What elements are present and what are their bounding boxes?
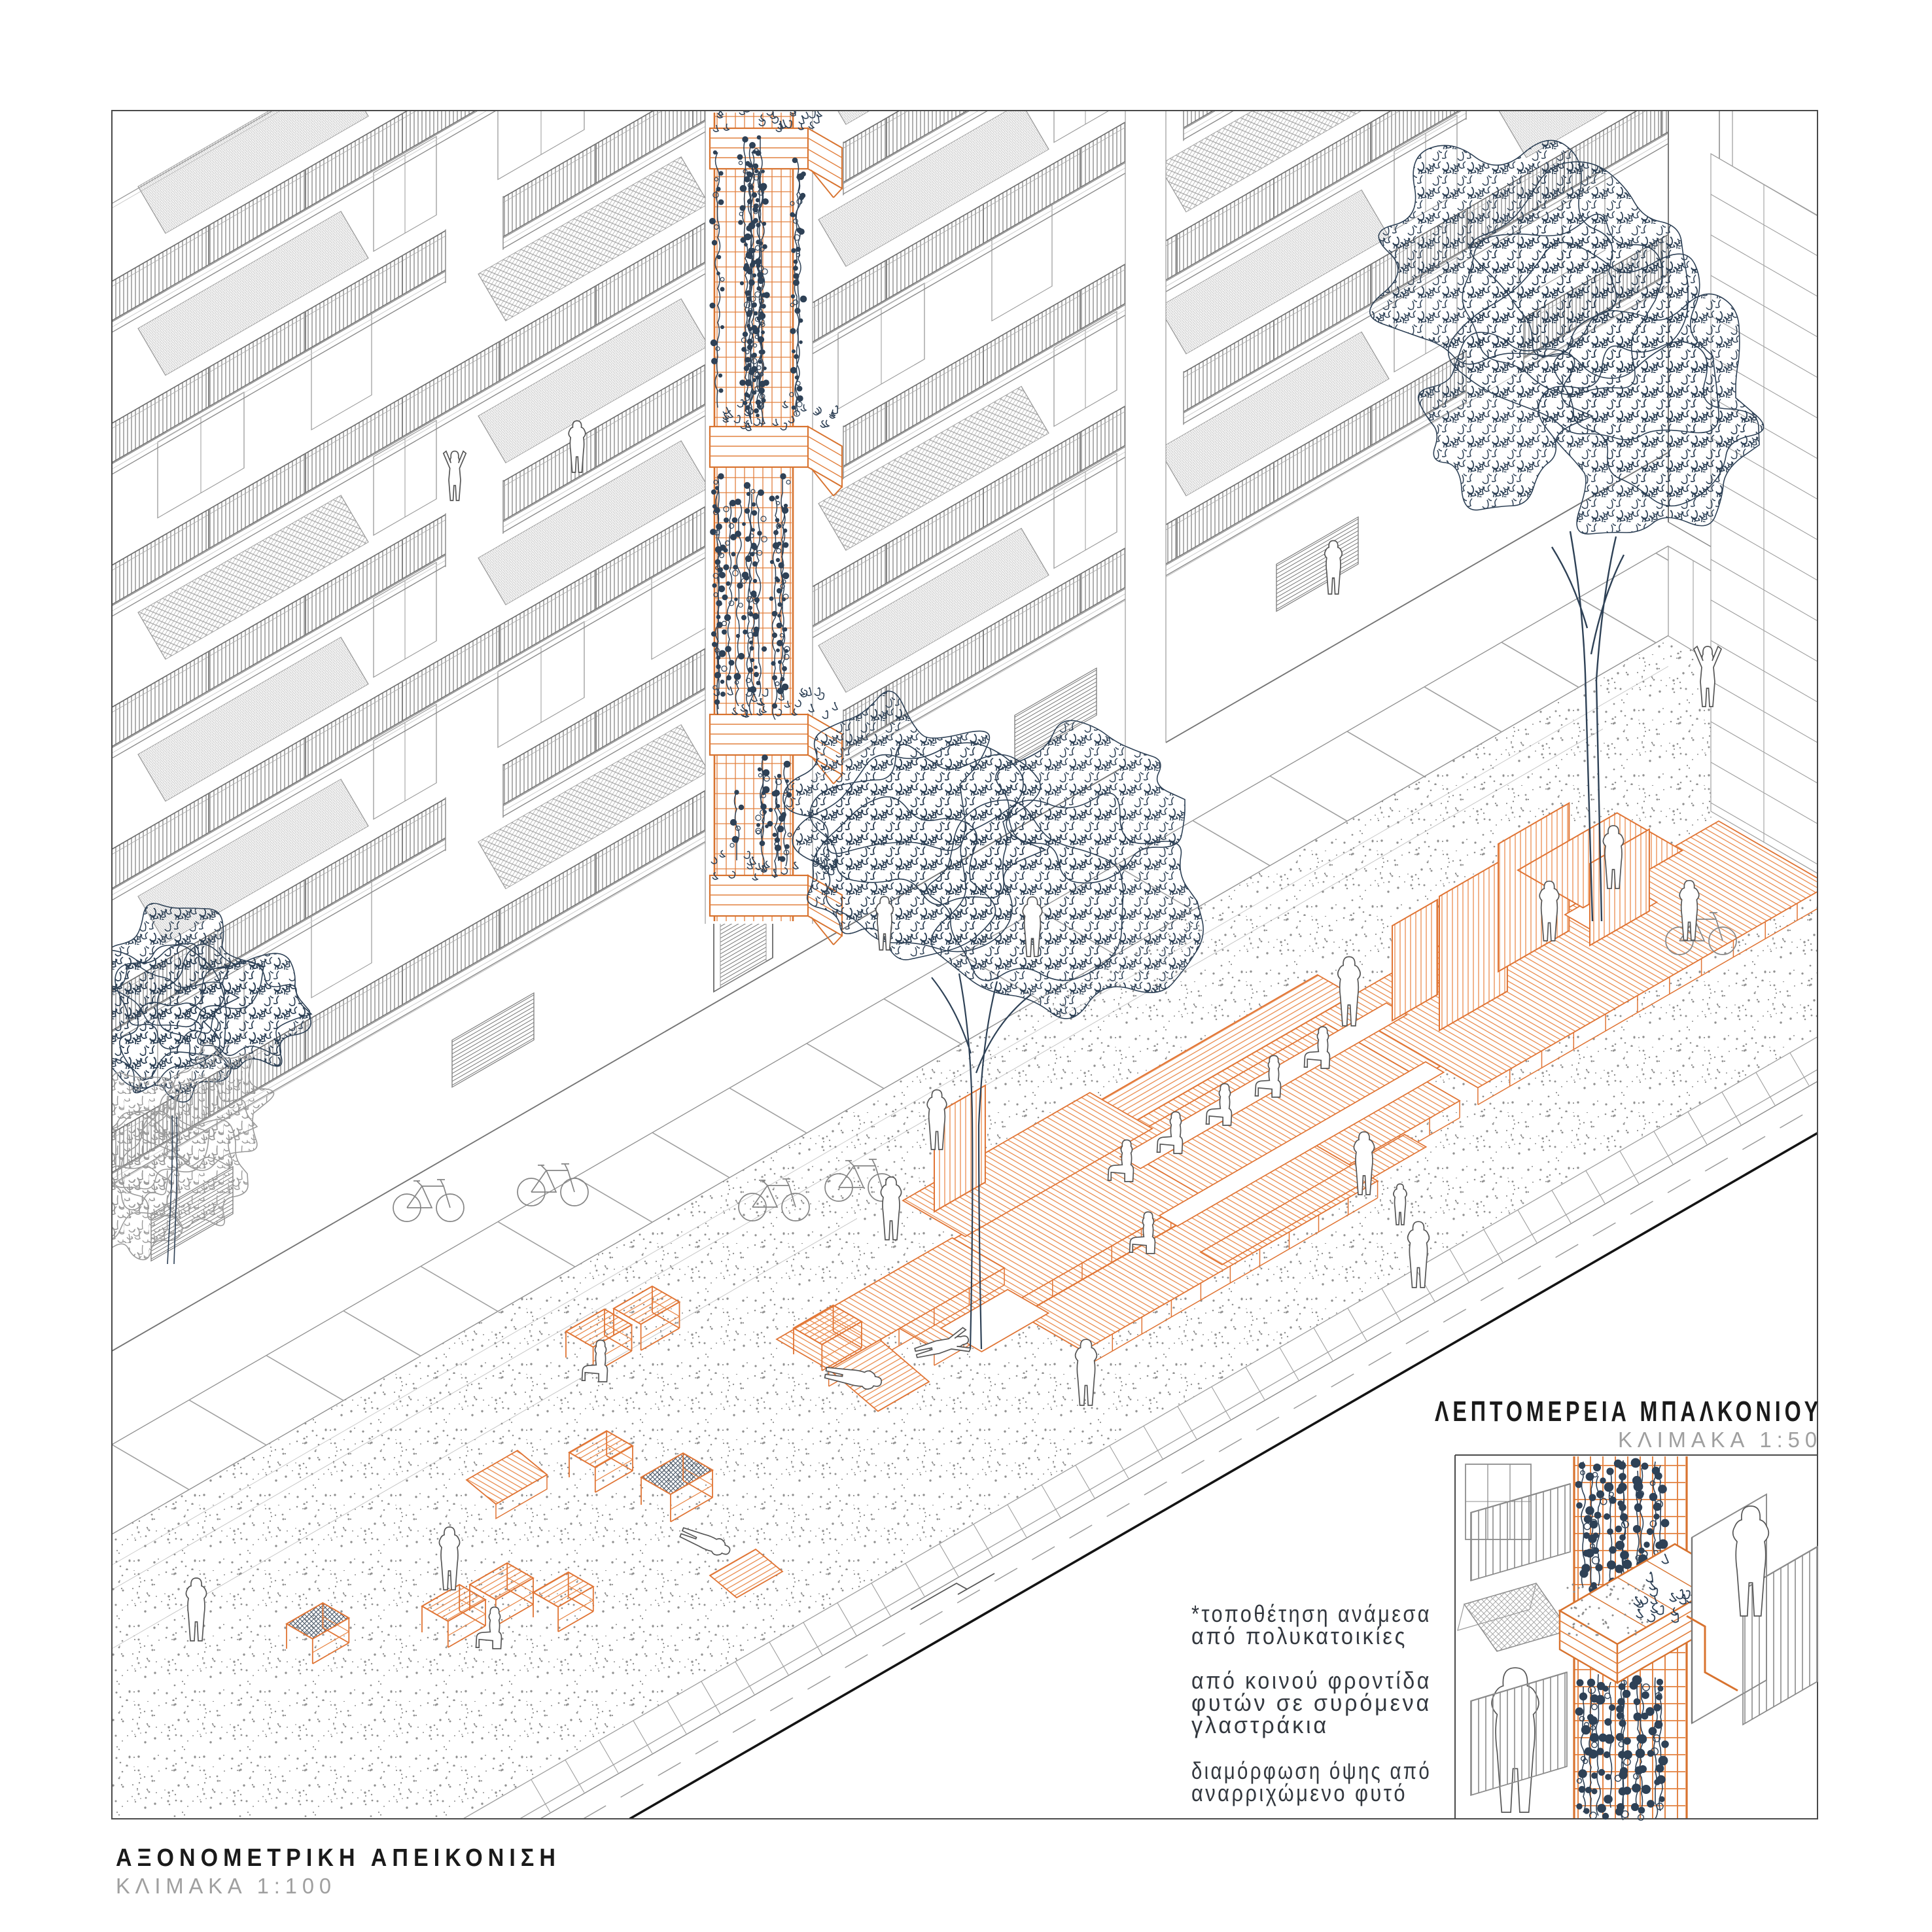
svg-text:ΚΛΙΜΑΚΑ 1:100: ΚΛΙΜΑΚΑ 1:100 <box>116 1874 336 1898</box>
svg-text:ΛΕΠΤΟΜΕΡΕΙΑ ΜΠΑΛΚΟΝΙΟΥ: ΛΕΠΤΟΜΕΡΕΙΑ ΜΠΑΛΚΟΝΙΟΥ <box>1435 1396 1822 1428</box>
svg-text:από πολυκατοικίες: από πολυκατοικίες <box>1191 1623 1407 1649</box>
svg-text:αναρριχώμενο φυτό: αναρριχώμενο φυτό <box>1191 1780 1407 1806</box>
svg-text:ΚΛΙΜΑΚΑ 1:50: ΚΛΙΜΑΚΑ 1:50 <box>1618 1428 1822 1452</box>
svg-text:ΑΞΟΝΟΜΕΤΡΙΚΗ ΑΠΕΙΚΟΝΙΣΗ: ΑΞΟΝΟΜΕΤΡΙΚΗ ΑΠΕΙΚΟΝΙΣΗ <box>116 1844 561 1872</box>
svg-text:γλαστράκια: γλαστράκια <box>1191 1712 1329 1738</box>
